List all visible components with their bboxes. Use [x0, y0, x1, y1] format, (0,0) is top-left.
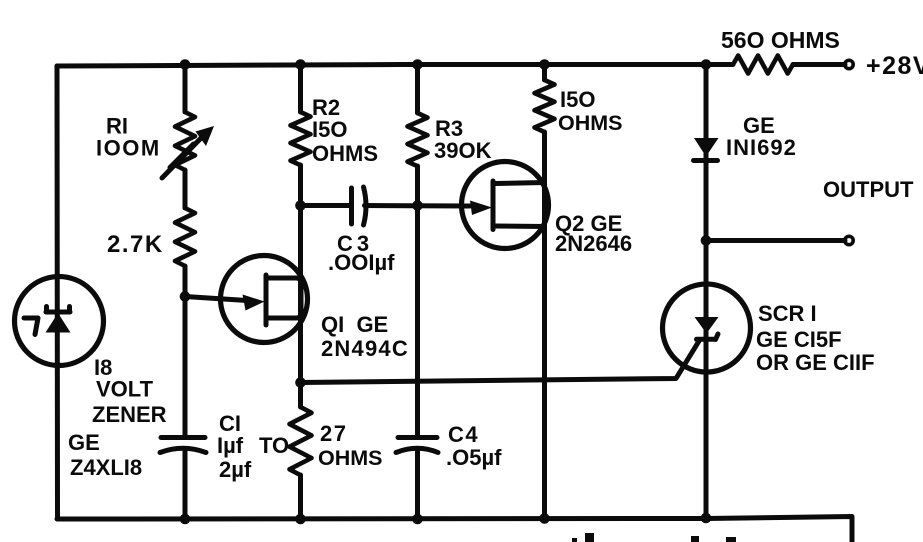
svg-text:OUTPUT: OUTPUT [823, 177, 914, 202]
svg-text:.OOIµf: .OOIµf [328, 250, 395, 275]
svg-text:I5O: I5O [312, 117, 347, 142]
svg-text:C4: C4 [448, 422, 479, 447]
svg-text:+28V: +28V [866, 52, 923, 80]
svg-text:Z4XLI8: Z4XLI8 [70, 455, 142, 480]
svg-text:SCR I: SCR I [758, 301, 817, 326]
svg-text:2.7K: 2.7K [107, 231, 164, 258]
svg-text:OHMS: OHMS [558, 111, 623, 135]
svg-text:OHMS: OHMS [318, 446, 383, 470]
svg-text:GE CI5F: GE CI5F [756, 327, 842, 352]
svg-text:Iµf: Iµf [217, 433, 244, 458]
svg-text:QI GE: QI GE [321, 312, 388, 337]
svg-text:56O OHMS: 56O OHMS [721, 27, 840, 53]
svg-text:INI692: INI692 [726, 135, 797, 160]
svg-text:2N2646: 2N2646 [555, 231, 632, 256]
svg-text:I5O: I5O [560, 87, 595, 112]
svg-text:2N494C: 2N494C [321, 336, 409, 361]
svg-text:39OK: 39OK [434, 138, 492, 163]
svg-text:ZENER: ZENER [92, 402, 167, 427]
svg-text:TO: TO [259, 433, 289, 458]
svg-text:OHMS: OHMS [312, 141, 378, 166]
svg-text:GE: GE [68, 430, 100, 455]
svg-text:VOLT: VOLT [96, 377, 154, 402]
svg-text:OR GE CIIF: OR GE CIIF [756, 350, 875, 375]
svg-text:IOOM: IOOM [96, 136, 161, 161]
svg-text:2µf: 2µf [219, 457, 252, 482]
svg-text:.O5µf: .O5µf [446, 445, 502, 470]
svg-text:27: 27 [320, 421, 347, 446]
